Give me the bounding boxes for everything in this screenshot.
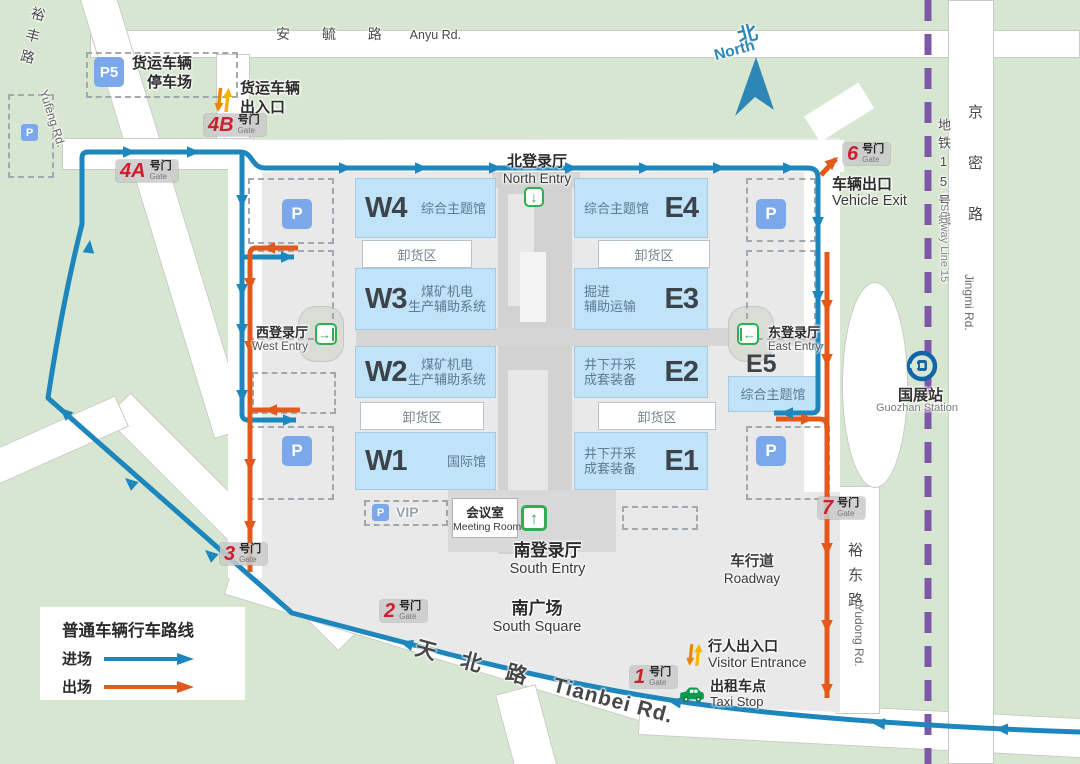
corridor-block (520, 252, 546, 322)
south-square-label: 南广场 South Square (452, 594, 622, 635)
parking-area (252, 372, 336, 414)
south-entry-icon: ↑ (521, 505, 547, 531)
visitor-entrance-icon (684, 640, 704, 675)
hall-desc: 井下开采成套装备 (584, 446, 636, 476)
gate-3: 3 号门Gate (220, 543, 267, 565)
yufeng-road-label-zh: 裕丰路 (14, 5, 49, 74)
hall-e3: E3 掘进辅助运输 (574, 268, 708, 330)
hall-w4: W4 综合主题馆 (355, 178, 496, 238)
station-name-en: Guozhan Station (876, 402, 958, 414)
west-entry-label: 西登录厅 West Entry (228, 322, 308, 353)
north-arrow-icon (735, 57, 774, 116)
jingmi-road-label-zh: 京密路 (964, 104, 985, 257)
parking-p5-icon: P5 (94, 57, 124, 87)
unloading-zone: 卸货区 (362, 240, 472, 268)
gate-7: 7 号门Gate (818, 497, 865, 519)
parking-icon: P (21, 124, 38, 141)
hall-desc: 掘进辅助运输 (584, 284, 636, 314)
hall-w2: W2 煤矿机电生产辅助系统 (355, 346, 496, 398)
parking-area (622, 506, 698, 530)
hall-code: E3 (665, 283, 698, 316)
parking-icon: P (282, 436, 312, 466)
vip-label: VIP (396, 504, 419, 520)
unloading-zone: 卸货区 (598, 240, 710, 268)
gate6-road (804, 83, 874, 142)
hall-desc: 综合主题馆 (421, 201, 486, 216)
parking-icon: P (372, 504, 389, 521)
southwest-branch-road (0, 395, 129, 487)
hall-code: W3 (365, 283, 407, 316)
hall-e1: E1 井下开采成套装备 (574, 432, 708, 490)
gate-1: 1 号门Gate (630, 666, 677, 688)
taxi-icon (678, 684, 706, 710)
legend: 普通车辆行车路线 进场 出场 (40, 607, 245, 700)
hall-desc: 煤矿机电生产辅助系统 (408, 357, 486, 387)
freight-parking-label: 货运车辆 停车场 (132, 54, 192, 92)
taxi-stop-label: 出租车点 Taxi Stop (710, 679, 766, 709)
east-entry-label: 东登录厅 East Entry (768, 322, 858, 353)
parking-icon: P (756, 199, 786, 229)
north-entry-icon: ↓ (524, 187, 544, 207)
visitor-entrance-label: 行人出入口 Visitor Entrance (708, 638, 807, 670)
hall-code: E1 (665, 445, 698, 478)
hall-desc: 井下开采成套装备 (584, 357, 636, 387)
hall-w1: W1 国际馆 (355, 432, 496, 490)
exit-arrow-icon (102, 681, 194, 693)
north-entry-label: 北登录厅 North Entry (472, 150, 602, 186)
legend-enter-row: 进场 (62, 648, 245, 669)
vehicle-exit-label: 车辆出口 Vehicle Exit (832, 176, 907, 210)
metro-logo-icon (906, 350, 938, 387)
gate-4b: 4B 号门Gate (204, 114, 266, 136)
hall-desc: 综合主题馆 (584, 201, 649, 216)
freight-gate-label: 货运车辆 出入口 (240, 79, 300, 117)
yudong-road-label-en: Yudong Rd. (852, 604, 866, 667)
unloading-zone: 卸货区 (360, 402, 484, 430)
east-entry-icon: ← (737, 323, 759, 345)
hall-e2: E2 井下开采成套装备 (574, 346, 708, 398)
hall-desc: 综合主题馆 (740, 387, 805, 402)
hall-w3: W3 煤矿机电生产辅助系统 (355, 268, 496, 330)
subway-line-label-en: Subway Line 15 (938, 204, 950, 282)
hall-code: W1 (365, 445, 407, 478)
corridor-block (508, 370, 548, 506)
hall-code: E4 (665, 192, 698, 225)
hall-e4: E4 综合主题馆 (574, 178, 708, 238)
west-entry-icon: → (315, 323, 337, 345)
exhibition-traffic-map: W4 综合主题馆 E4 综合主题馆 W3 煤矿机电生产辅助系统 E3 掘进辅助运… (0, 0, 1080, 764)
hall-desc: 国际馆 (447, 454, 486, 469)
jingmi-road-label-en: Jingmi Rd. (962, 274, 976, 331)
anyu-road-label: 安 毓 路 Anyu Rd. (276, 24, 461, 44)
legend-exit-row: 出场 (62, 676, 245, 697)
south-entry-label: 南登录厅 South Entry (460, 536, 635, 577)
legend-title: 普通车辆行车路线 (62, 617, 245, 641)
gate-6: 6 号门Gate (843, 143, 890, 165)
enter-arrow-icon (102, 653, 194, 665)
unloading-zone: 卸货区 (598, 402, 716, 430)
gate-4a: 4A 号门Gate (116, 160, 178, 182)
hall-code: E2 (665, 356, 698, 389)
meeting-room: 会议室 Meeting Room (452, 498, 518, 538)
hall-code: W4 (365, 192, 407, 225)
hall-e5-code: E5 (746, 350, 777, 379)
hall-desc: 煤矿机电生产辅助系统 (408, 284, 486, 314)
hall-e5: 综合主题馆 (728, 376, 818, 412)
gate-2: 2 号门Gate (380, 600, 427, 622)
parking-icon: P (282, 199, 312, 229)
parking-icon: P (756, 436, 786, 466)
hall-code: W2 (365, 356, 407, 389)
roadway-label: 车行道 Roadway (710, 550, 794, 586)
